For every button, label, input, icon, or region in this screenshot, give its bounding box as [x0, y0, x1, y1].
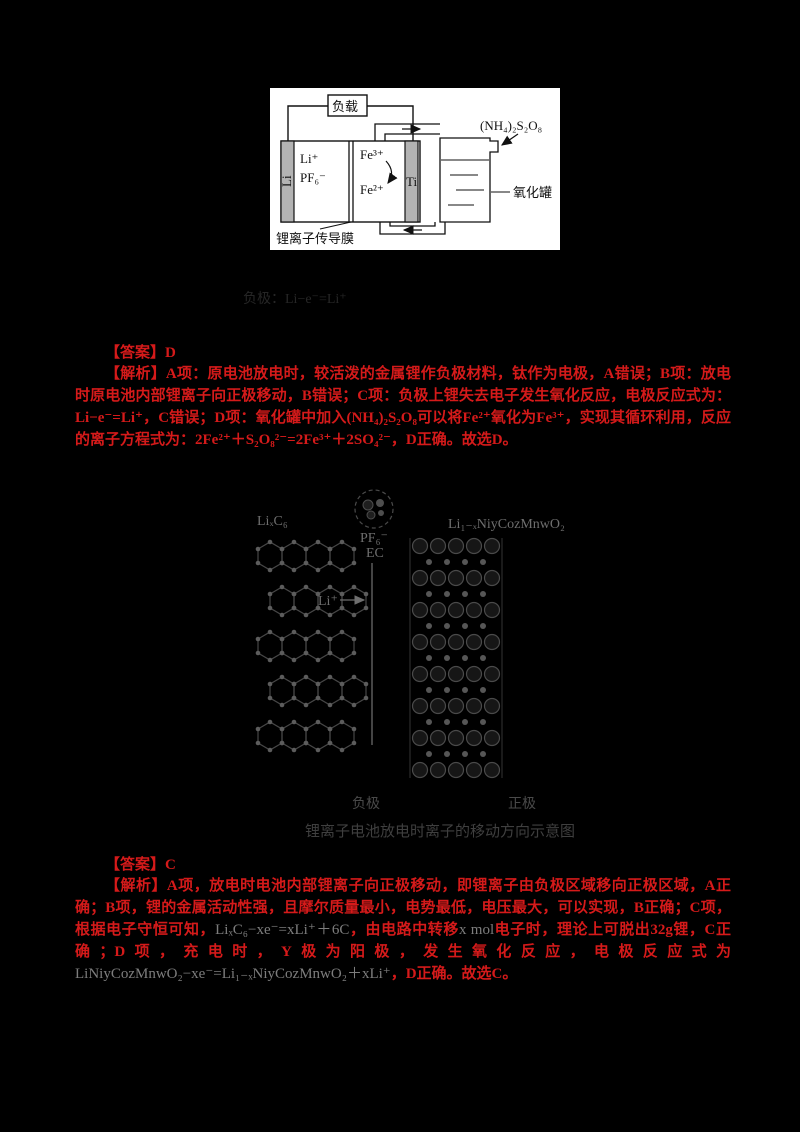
oxide-layer [413, 667, 500, 682]
electrolyte-anion: PF₆⁻ [300, 170, 326, 185]
oxide-layer [413, 699, 500, 714]
molecule-atom [367, 511, 375, 519]
answer-2-value: x mol [459, 922, 494, 938]
cathode-formula: Li₁₋ₓNiyCozMnwO₂ [448, 517, 565, 532]
faint-equation: 负极：Li−e⁻=Li⁺ [243, 288, 543, 308]
oxide-layer [413, 603, 500, 618]
graphite-layer [256, 630, 357, 663]
solvated-label-2: EC [366, 546, 384, 561]
oxide-layer [413, 731, 500, 746]
li-electrode-label: Li [279, 175, 294, 187]
oxide-layer [413, 539, 500, 554]
anode-label: 负极 [352, 796, 380, 812]
answer-2-seg-3: ，由电路中转移 [349, 922, 459, 938]
oxidant-arrow [502, 134, 518, 145]
battery-diagram: 负载 Li Li⁺ PF₆⁻ Fe³⁺ Fe²⁺ Ti [270, 88, 560, 250]
answer-1-analysis-text: 【解析】A项：原电池放电时，较活泼的金属锂作负极材料，钛作为电极，A错误；B项：… [75, 366, 731, 448]
graphite-layer [268, 675, 369, 708]
oxide-layer [413, 571, 500, 586]
cathode-label: 正极 [508, 796, 536, 812]
figure-caption: 锂离子电池放电时离子的移动方向示意图 [305, 822, 575, 840]
metal-layer [426, 751, 486, 757]
metal-layer [426, 559, 486, 565]
metal-layer [426, 719, 486, 725]
battery-diagram-panel: 负载 Li Li⁺ PF₆⁻ Fe³⁺ Fe²⁺ Ti [270, 88, 560, 250]
battery-microstructure-figure: PF₆⁻ EC LiₓC₆ Li⁺ Li₁₋ₓNiyCozMnwO₂ [0, 478, 800, 850]
metal-layer [426, 591, 486, 597]
fe2-label: Fe²⁺ [360, 182, 384, 197]
tank-label: 氧化罐 [513, 185, 552, 200]
solvated-ion-circle [355, 490, 393, 528]
solvated-label-1: PF₆⁻ [360, 531, 388, 546]
oxide-layer [413, 635, 500, 650]
graphite-layer [256, 720, 357, 753]
answer-2-equation-2: LiNiyCozMnwO₂−xe⁻=Li₁₋ₓNiyCozMnwO₂＋xLi⁺ [75, 966, 391, 982]
metal-layer [426, 623, 486, 629]
wire-left [288, 106, 328, 141]
li-ion-label: Li⁺ [318, 594, 338, 609]
answer-2-label: 【答案】C [105, 853, 176, 874]
fe3-label: Fe³⁺ [360, 147, 384, 162]
answer-1-label: 【答案】D [105, 341, 176, 362]
oxidation-tank [440, 138, 498, 222]
graphite-layer [256, 540, 357, 573]
answer-2-seg-7: ，D正确。故选C。 [391, 966, 518, 982]
ti-electrode-label: Ti [406, 174, 417, 189]
anode-formula: LiₓC₆ [257, 514, 288, 529]
answer-2-equation-1: LiₓC₆−xe⁻=xLi⁺＋6C [215, 922, 349, 938]
electrolyte-cation: Li⁺ [300, 151, 318, 166]
load-label: 负载 [332, 99, 358, 114]
metal-layer [426, 655, 486, 661]
oxide-layer [413, 763, 500, 778]
molecule-atom [378, 510, 384, 516]
molecule-atom [363, 500, 373, 510]
document-page: 负载 Li Li⁺ PF₆⁻ Fe³⁺ Fe²⁺ Ti [0, 0, 800, 1132]
metal-layer [426, 687, 486, 693]
answer-2-analysis: 【解析】A项，放电时电池内部锂离子向正极移动，即锂离子由负极区域移向正极区域，A… [75, 875, 731, 985]
membrane-label: 锂离子传导膜 [276, 231, 354, 246]
answer-1-analysis: 【解析】A项：原电池放电时，较活泼的金属锂作负极材料，钛作为电极，A错误；B项：… [75, 363, 731, 451]
molecule-atom [376, 499, 384, 507]
oxidant-label: (NH₄)₂S₂O₈ [480, 118, 542, 133]
membrane-leader [320, 222, 351, 229]
